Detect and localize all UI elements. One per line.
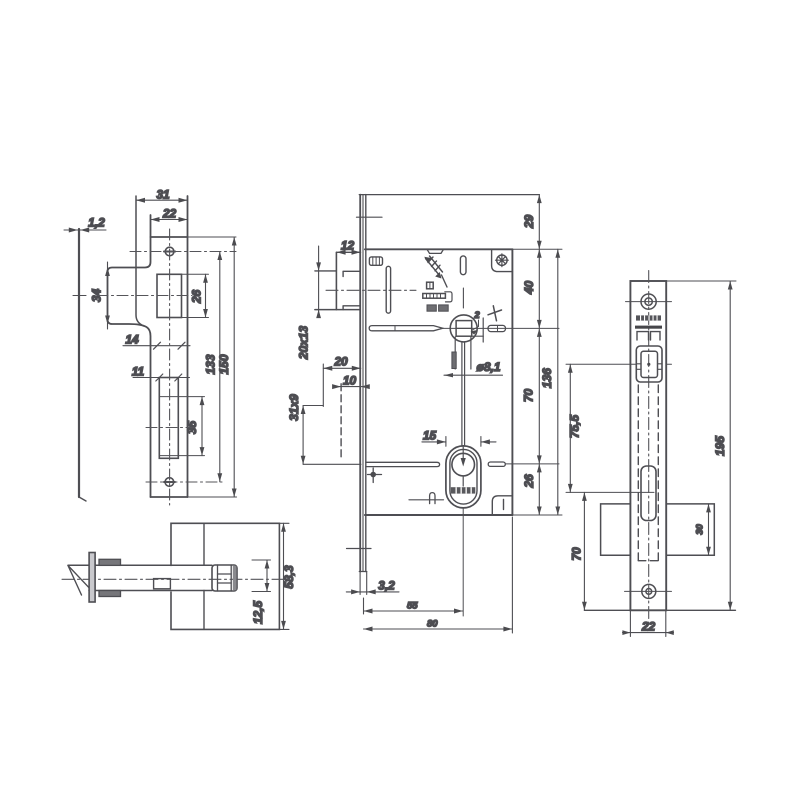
svg-text:20: 20	[333, 355, 348, 369]
svg-text:133: 133	[203, 354, 217, 374]
svg-text:30: 30	[695, 524, 706, 535]
svg-text:70: 70	[570, 547, 584, 561]
svg-text:58,3: 58,3	[282, 565, 296, 589]
svg-text:31: 31	[156, 188, 170, 202]
svg-text:195: 195	[713, 436, 727, 456]
svg-text:3,2: 3,2	[378, 579, 395, 593]
svg-text:26: 26	[190, 290, 204, 305]
svg-text:70: 70	[521, 389, 535, 403]
svg-text:11: 11	[132, 365, 145, 379]
svg-text:150: 150	[217, 354, 231, 374]
svg-text:ø8,1: ø8,1	[476, 360, 500, 374]
svg-text:12,5: 12,5	[251, 600, 265, 624]
svg-text:15: 15	[423, 429, 437, 443]
svg-text:136: 136	[540, 368, 554, 388]
svg-text:2: 2	[473, 310, 480, 321]
svg-text:75,5: 75,5	[568, 414, 582, 438]
svg-text:10: 10	[343, 374, 357, 388]
svg-text:22: 22	[641, 619, 656, 633]
svg-text:1,2: 1,2	[88, 216, 105, 230]
svg-text:40: 40	[522, 281, 536, 296]
svg-text:26: 26	[522, 474, 536, 489]
svg-text:14: 14	[125, 333, 139, 347]
svg-text:22: 22	[162, 207, 177, 221]
svg-text:20x13: 20x13	[297, 325, 311, 360]
svg-text:80: 80	[427, 619, 438, 630]
svg-text:55: 55	[407, 600, 418, 611]
svg-text:29: 29	[522, 215, 536, 230]
svg-text:12: 12	[341, 238, 355, 252]
svg-text:31x9: 31x9	[287, 394, 301, 421]
